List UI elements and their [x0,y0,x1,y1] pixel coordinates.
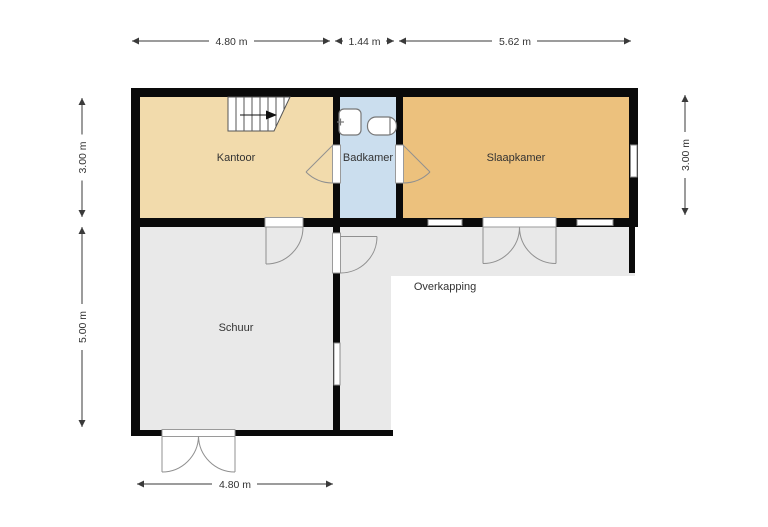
dimension-label: 1.44 m [348,36,380,48]
dimension-label: 3.00 m [77,141,89,173]
room-label-kantoor: Kantoor [217,152,256,164]
double-door-schuur-south [162,436,235,472]
door-opening-slaapkamer-double [483,218,556,228]
dimension-label: 3.00 m [680,139,692,171]
door-opening-schuur-overkapping [333,233,341,273]
room-label-slaapkamer: Slaapkamer [487,152,546,164]
dimension-label: 5.62 m [499,36,531,48]
wall-overkapping-right [629,227,635,273]
room-label-schuur: Schuur [219,322,254,334]
wall-top [131,88,638,97]
dimension-right-1: 3.00 m [679,95,692,215]
room-label-overkapping: Overkapping [414,281,476,293]
window-slaapkamer-left [428,220,462,226]
area-overkapping-horizontal [391,227,635,276]
door-opening-kantoor-schuur [265,218,303,228]
dimension-top-2: 1.44 m [335,35,394,48]
area-overkapping-vertical [340,227,391,430]
door-opening-badkamer-slaapkamer [396,145,404,183]
dimension-top-3: 5.62 m [399,35,631,48]
floorplan-drawing: 4.80 m 1.44 m 5.62 m 3.00 m 5.00 m 3.00 … [0,0,768,527]
dimension-label: 4.80 m [219,479,251,491]
floorplan-canvas: 4.80 m 1.44 m 5.62 m 3.00 m 5.00 m 3.00 … [0,0,768,527]
dimension-left-2: 5.00 m [76,227,89,427]
wall-middle [131,218,638,227]
dimension-top-1: 4.80 m [132,35,330,48]
door-opening-schuur-double [162,430,235,437]
dimension-left-1: 3.00 m [76,98,89,217]
dimension-label: 5.00 m [77,311,89,343]
door-opening-badkamer-kantoor [333,145,341,183]
window-slaapkamer-east [631,145,638,177]
dimension-label: 4.80 m [215,36,247,48]
window-schuur-east [334,343,340,385]
dimension-bottom-1: 4.80 m [137,478,333,491]
window-slaapkamer-right [577,220,613,226]
room-label-badkamer: Badkamer [343,152,393,164]
toilet-icon [368,117,397,135]
washbasin-icon [337,109,361,135]
wall-left [131,88,140,436]
